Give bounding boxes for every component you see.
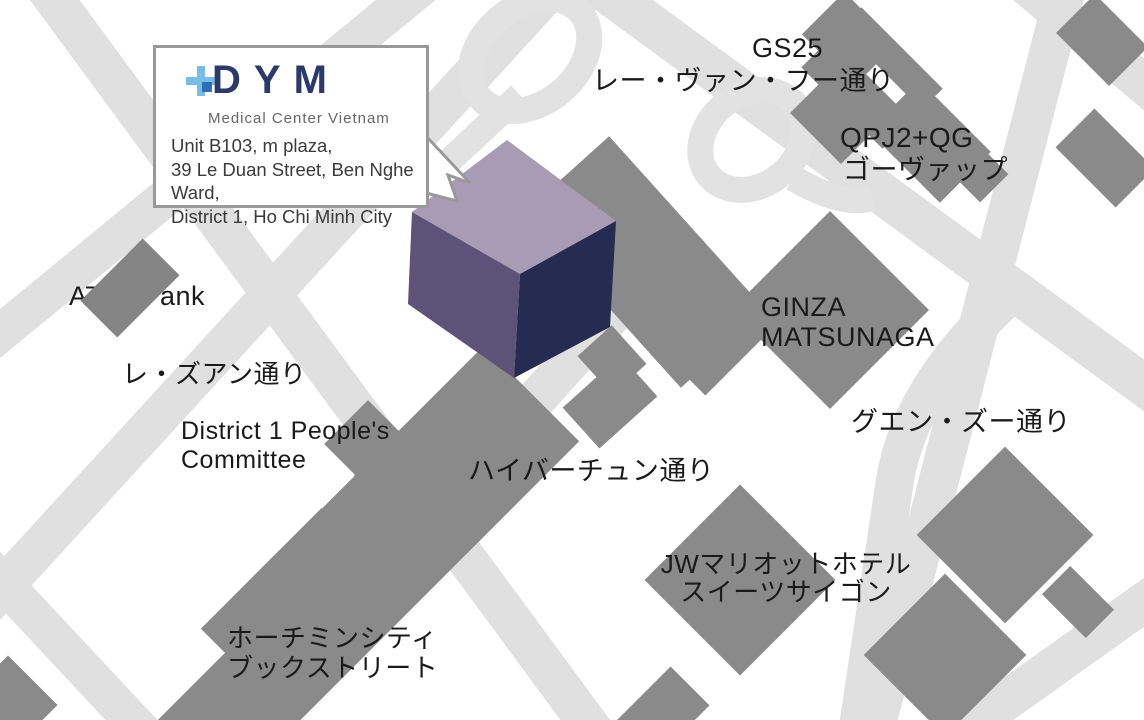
label-district1-committee: District 1 People's Committee [181,417,390,475]
label-go-vap: ゴーヴァップ [843,155,1008,185]
label-plus-code: QPJ2+QG [840,122,973,153]
label-book-street: ホーチミンシティ ブックストリート [227,623,438,683]
address-text: Unit B103, m plaza, 39 Le Duan Street, B… [171,134,426,228]
address-line-2: 39 Le Duan Street, Ben Nghe Ward, [171,158,426,205]
label-atm-bank-left: ATM [69,281,126,311]
label-gs25: GS25 [752,33,823,63]
dym-logo: DYM [212,58,340,103]
label-le-van-huu-street: レー・ヴァン・フー通り [592,66,895,96]
label-jw-marriott: JWマリオットホテル スイーツサイゴン [616,550,956,606]
label-ginza-matsunaga: GINZA MATSUNAGA [761,292,935,352]
building-bottom-center [611,667,710,720]
address-line-3: District 1, Ho Chi Minh City [171,205,426,229]
building-book-street [109,514,431,720]
address-line-1: Unit B103, m plaza, [171,134,426,158]
building-topright-b [1056,109,1144,208]
building-bottom-left-corner [0,656,57,720]
label-hai-ba-trung-street: ハイバーチュン通り [468,456,714,486]
access-map: ATM ank GS25 レー・ヴァン・フー通り QPJ2+QG ゴーヴァップ … [0,0,1144,720]
label-le-duan-street: レ・ズアン通り [122,360,306,389]
label-nguyen-du-street: グエン・ズー通り [851,407,1071,437]
label-atm-bank-right: ank [160,281,205,311]
address-callout: DYM Medical Center Vietnam Unit B103, m … [153,45,429,208]
dym-logo-subtitle: Medical Center Vietnam [208,110,390,127]
